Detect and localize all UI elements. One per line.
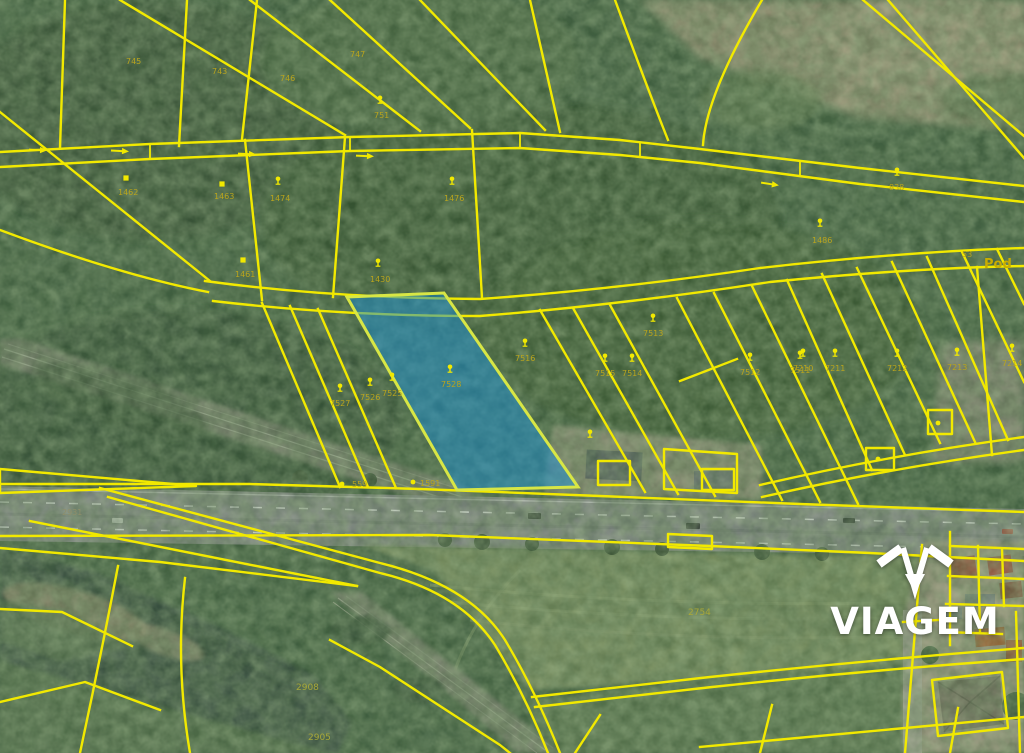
parcel-label: 2905 [308,733,331,743]
parcel-label: 2908 [296,683,319,693]
building-icon [240,257,245,262]
parcel-label: 2754 [688,608,711,618]
parcel-label: 838 [889,183,904,192]
parcel-label: 1474 [270,194,290,203]
parcel-label: 7525 [382,389,402,398]
parcel-label: 7526 [360,393,380,402]
parcel-label: 743 [212,67,227,76]
parcel-label: 7513 [643,329,663,338]
parcel-label: 559 [352,480,367,489]
parcel-label: 1462 [118,188,138,197]
cadastral-aerial-map: 7457437467477518381486146214631474147614… [0,0,1024,753]
building-icon [219,181,224,186]
street-name-label: Pod [984,257,1012,272]
parcel-label: 7212 [887,364,907,373]
parcel-label: 1476 [444,194,464,203]
map-viewport[interactable]: 7457437467477518381486146214631474147614… [0,0,1024,753]
parcel-label: 1486 [812,236,832,245]
parcel-label: 7210 [793,364,813,373]
parcel-label: 1591 [420,479,440,488]
parcel-label: 1461 [235,270,255,279]
building-icon [123,175,128,180]
parcel-label: 746 [280,74,295,83]
parcel-label: 751 [374,111,389,120]
parcel-label: 7516 [515,354,535,363]
parcel-label: 7214 [1002,359,1022,368]
parcel-label: 7528 [441,380,461,389]
parcel-label: 7213 [947,363,967,372]
dot-icon [936,421,941,426]
viagem-logo-text: VIAGEM [830,600,1000,643]
parcel-label: 745 [126,57,141,66]
parcel-label: 7211 [825,364,845,373]
parcel-label: 7514 [622,369,642,378]
area-number-label: 53 [962,250,972,259]
parcel-label: 7527 [330,399,350,408]
parcel-label: 7515 [595,369,615,378]
dot-icon [411,480,416,485]
parcel-label: 1463 [214,192,234,201]
parcel-label: 1430 [370,275,390,284]
dot-icon [876,457,881,462]
parcel-label: 2931 [62,508,82,517]
dot-icon [340,482,345,487]
parcel-label: 747 [350,50,365,59]
parcel-label: 7512 [740,368,760,377]
